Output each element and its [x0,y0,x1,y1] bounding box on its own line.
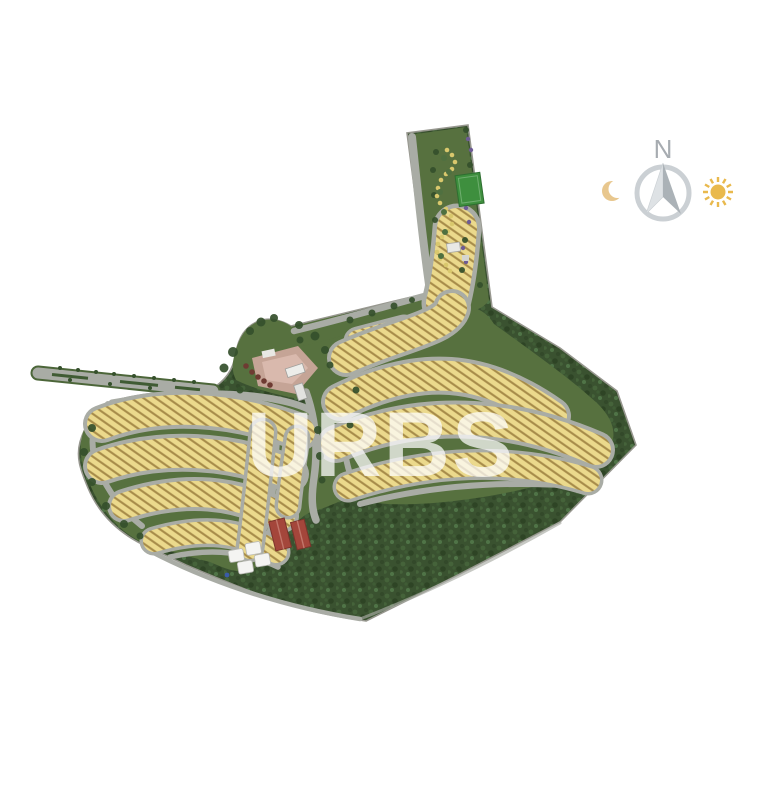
compass-rose-icon: N [637,134,689,219]
compass-label: N [654,134,673,164]
strip-building-small [462,255,469,261]
strip-building [447,242,461,253]
marker-dot [225,573,230,578]
sports-field [455,172,484,206]
masterplan-map: URBS N [0,0,769,800]
masterplan-canvas: URBS N [0,0,769,800]
sun-icon [703,177,733,207]
moon-icon [602,180,627,201]
watermark: URBS [247,394,516,496]
